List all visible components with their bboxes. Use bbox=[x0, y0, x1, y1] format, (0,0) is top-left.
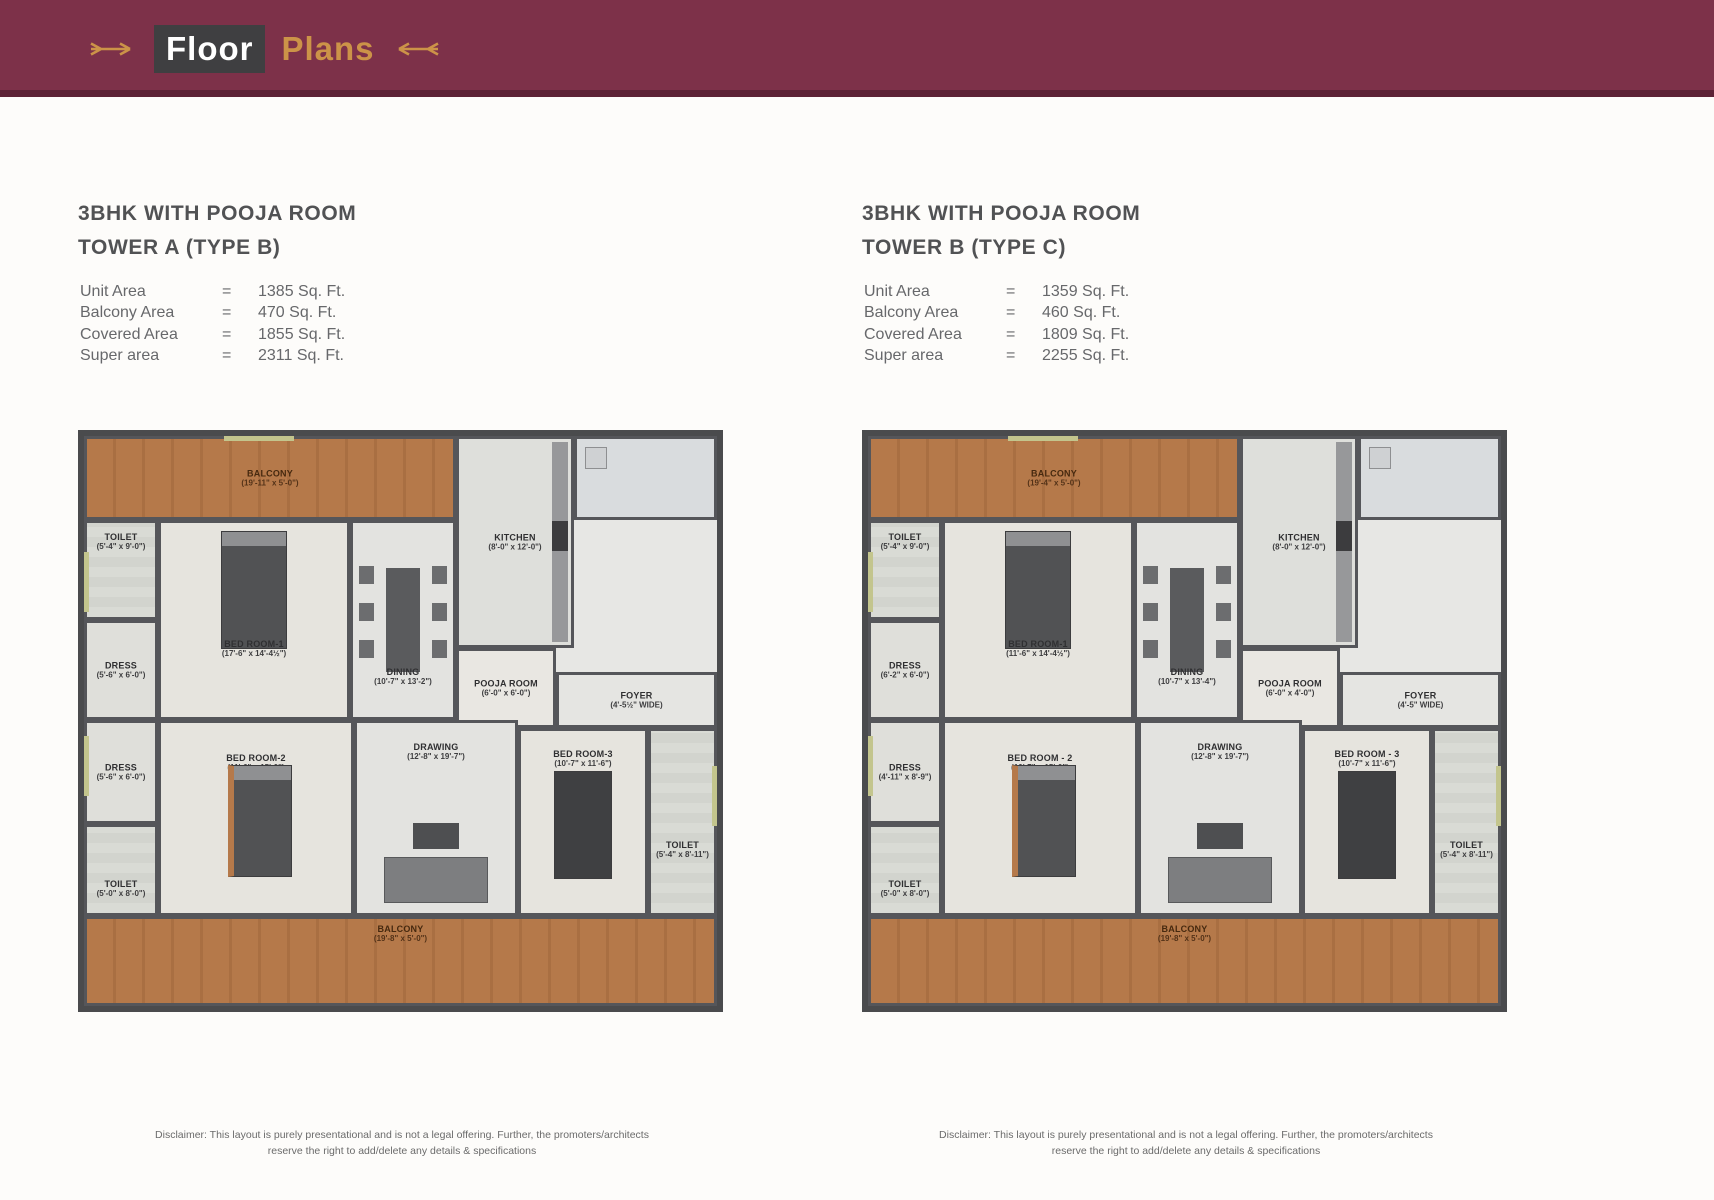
window-accent bbox=[84, 552, 89, 612]
room-toilet-bottom-right: TOILET (5'-4" x 8'-11") bbox=[1432, 728, 1501, 916]
room-dims: (6'-0" x 6'-0") bbox=[459, 689, 553, 698]
room-kitchen: KITCHEN (8'-0" x 12'-0") bbox=[1240, 436, 1358, 648]
room-dims: (12'-8" x 19'-7") bbox=[357, 752, 515, 761]
room-label: BALCONY bbox=[87, 469, 453, 479]
bed-icon bbox=[228, 765, 292, 877]
washing-machine-icon bbox=[1369, 447, 1391, 469]
stove-icon bbox=[552, 521, 568, 551]
room-label: TOILET bbox=[1435, 840, 1498, 850]
spec-label: Unit Area bbox=[80, 283, 210, 301]
room-label: BED ROOM-2 bbox=[161, 753, 351, 763]
room-label: DRESS bbox=[87, 661, 155, 671]
room-label: TOILET bbox=[651, 840, 714, 850]
room-pooja: POOJA ROOM (6'-0" x 4'-0") bbox=[1240, 648, 1340, 728]
room-dims: (11'-6" x 14'-4½") bbox=[945, 649, 1131, 658]
bed-icon bbox=[1338, 771, 1396, 879]
window-accent bbox=[84, 736, 89, 796]
arrow-right-ornament-icon bbox=[88, 39, 138, 59]
room-dress-top: DRESS (6'-2" x 6'-0") bbox=[868, 620, 942, 720]
disclaimer-line1: Disclaimer: This layout is purely presen… bbox=[78, 1127, 726, 1143]
spec-row: Balcony Area = 470 Sq. Ft. bbox=[80, 303, 345, 325]
room-foyer: FOYER (4'-5½" WIDE) bbox=[556, 672, 717, 728]
room-dining: DINING (10'-7" x 13'-2") bbox=[350, 520, 456, 720]
plan-b-title-line2: TOWER B (TYPE C) bbox=[862, 231, 1510, 265]
spec-equals: = bbox=[210, 304, 258, 322]
header-title-group: Floor Plans bbox=[88, 0, 441, 97]
room-dims: (10'-7" x 13'-2") bbox=[353, 677, 453, 686]
plan-a-disclaimer: Disclaimer: This layout is purely presen… bbox=[78, 1127, 726, 1160]
room-label: POOJA ROOM bbox=[459, 679, 553, 689]
spec-label: Unit Area bbox=[864, 283, 994, 301]
room-dims: (17'-6" x 14'-4½") bbox=[161, 649, 347, 658]
room-balcony-top: BALCONY (19'-11" x 5'-0") bbox=[84, 436, 456, 520]
room-balcony-bottom: BALCONY (19'-8" x 5'-0") bbox=[84, 916, 717, 1006]
room-drawing: DRAWING (12'-8" x 19'-7") bbox=[354, 720, 518, 916]
window-accent bbox=[868, 552, 873, 612]
room-dims: (12'-8" x 19'-7") bbox=[1141, 752, 1299, 761]
room-toilet-top: TOILET (5'-4" x 9'-0") bbox=[868, 520, 942, 620]
header-band: Floor Plans bbox=[0, 0, 1714, 97]
room-dims: (5'-0" x 8'-0") bbox=[871, 889, 939, 898]
window-accent bbox=[712, 766, 717, 826]
room-label: DRESS bbox=[871, 763, 939, 773]
dining-table-icon bbox=[386, 568, 420, 672]
room-balcony-top: BALCONY (19'-4" x 5'-0") bbox=[868, 436, 1240, 520]
plan-b-title: 3BHK WITH POOJA ROOM TOWER B (TYPE C) bbox=[862, 197, 1510, 264]
room-dress-bottom: DRESS (4'-11" x 8'-9") bbox=[868, 720, 942, 824]
room-pooja: POOJA ROOM (6'-0" x 6'-0") bbox=[456, 648, 556, 728]
room-dims: (5'-4" x 8'-11") bbox=[651, 850, 714, 859]
room-dims: (4'-5" WIDE) bbox=[1343, 701, 1498, 710]
spec-value: 1809 Sq. Ft. bbox=[1042, 326, 1129, 344]
center-table-icon bbox=[413, 823, 459, 849]
sofa-icon bbox=[1168, 857, 1272, 903]
page-title-plans: Plans bbox=[281, 30, 374, 68]
room-toilet-bottom-right: TOILET (5'-4" x 8'-11") bbox=[648, 728, 717, 916]
window-accent bbox=[224, 436, 294, 441]
spec-label: Balcony Area bbox=[864, 304, 994, 322]
room-toilet-bottom-left: TOILET (5'-0" x 8'-0") bbox=[868, 824, 942, 916]
room-dims: (10'-7" x 13'-4") bbox=[1137, 677, 1237, 686]
spec-equals: = bbox=[210, 283, 258, 301]
bed-icon bbox=[221, 531, 287, 649]
plan-a-title-line1: 3BHK WITH POOJA ROOM bbox=[78, 197, 726, 231]
bed-icon bbox=[1005, 531, 1071, 649]
window-accent bbox=[868, 736, 873, 796]
plan-b-specs: Unit Area = 1359 Sq. Ft. Balcony Area = … bbox=[864, 281, 1129, 367]
room-bedroom-3: BED ROOM - 3 (10'-7" x 11'-6") bbox=[1302, 728, 1432, 916]
room-label: BALCONY bbox=[871, 469, 1237, 479]
chairs-icon bbox=[359, 566, 374, 674]
room-label: BED ROOM-3 bbox=[521, 749, 645, 759]
room-toilet-top: TOILET (5'-4" x 9'-0") bbox=[84, 520, 158, 620]
bed-icon bbox=[554, 771, 612, 879]
spec-row: Unit Area = 1385 Sq. Ft. bbox=[80, 281, 345, 303]
plan-a-section: 3BHK WITH POOJA ROOM TOWER A (TYPE B) Un… bbox=[78, 197, 726, 1187]
plan-b-floorplan: BALCONY (19'-4" x 5'-0") KITCHEN (8'-0" … bbox=[862, 430, 1507, 1012]
sofa-icon bbox=[384, 857, 488, 903]
plan-a-title-line2: TOWER A (TYPE B) bbox=[78, 231, 726, 265]
spec-value: 470 Sq. Ft. bbox=[258, 304, 345, 322]
disclaimer-line1: Disclaimer: This layout is purely presen… bbox=[862, 1127, 1510, 1143]
spec-row: Unit Area = 1359 Sq. Ft. bbox=[864, 281, 1129, 303]
room-label: POOJA ROOM bbox=[1243, 679, 1337, 689]
disclaimer-line2: reserve the right to add/delete any deta… bbox=[862, 1143, 1510, 1159]
room-label: DRAWING bbox=[1141, 742, 1299, 752]
spec-row: Covered Area = 1809 Sq. Ft. bbox=[864, 324, 1129, 346]
plan-a-specs: Unit Area = 1385 Sq. Ft. Balcony Area = … bbox=[80, 281, 345, 367]
spec-equals: = bbox=[994, 283, 1042, 301]
room-drawing: DRAWING (12'-8" x 19'-7") bbox=[1138, 720, 1302, 916]
dining-table-icon bbox=[1170, 568, 1204, 672]
room-dims: (5'-4" x 9'-0") bbox=[871, 542, 939, 551]
spec-row: Super area = 2255 Sq. Ft. bbox=[864, 346, 1129, 368]
room-balcony-bottom: BALCONY (19'-8" x 5'-0") bbox=[868, 916, 1501, 1006]
chairs-icon bbox=[432, 566, 447, 674]
room-label: FOYER bbox=[1343, 691, 1498, 701]
room-dims: (5'-6" x 6'-0") bbox=[87, 773, 155, 782]
plan-a-floorplan: BALCONY (19'-11" x 5'-0") KITCHEN (8'-0"… bbox=[78, 430, 723, 1012]
disclaimer-line2: reserve the right to add/delete any deta… bbox=[78, 1143, 726, 1159]
room-label: BALCONY bbox=[871, 924, 1498, 934]
brochure-page: Floor Plans 3BHK WITH POOJA ROOM TOWER A… bbox=[0, 0, 1714, 1200]
spec-equals: = bbox=[994, 304, 1042, 322]
spec-row: Balcony Area = 460 Sq. Ft. bbox=[864, 303, 1129, 325]
room-dims: (19'-8" x 5'-0") bbox=[871, 934, 1498, 943]
room-kitchen: KITCHEN (8'-0" x 12'-0") bbox=[456, 436, 574, 648]
room-label: TOILET bbox=[87, 532, 155, 542]
spec-equals: = bbox=[994, 326, 1042, 344]
room-dims: (19'-4" x 5'-0") bbox=[871, 479, 1237, 488]
spec-value: 2311 Sq. Ft. bbox=[258, 347, 345, 365]
room-dims: (19'-11" x 5'-0") bbox=[87, 479, 453, 488]
room-dims: (4'-11" x 8'-9") bbox=[871, 773, 939, 782]
spec-equals: = bbox=[210, 326, 258, 344]
room-dims: (4'-5½" WIDE) bbox=[559, 701, 714, 710]
spec-row: Super area = 2311 Sq. Ft. bbox=[80, 346, 345, 368]
spec-row: Covered Area = 1855 Sq. Ft. bbox=[80, 324, 345, 346]
spec-value: 1855 Sq. Ft. bbox=[258, 326, 345, 344]
room-bedroom-2: BED ROOM - 2 (10'-7" x 15'-0") bbox=[942, 720, 1138, 916]
center-table-icon bbox=[1197, 823, 1243, 849]
room-dining: DINING (10'-7" x 13'-4") bbox=[1134, 520, 1240, 720]
room-bedroom-2: BED ROOM-2 (11'-6" x 15'-0") bbox=[158, 720, 354, 916]
arrow-left-ornament-icon bbox=[391, 39, 441, 59]
room-label: TOILET bbox=[871, 532, 939, 542]
room-label: DRESS bbox=[871, 661, 939, 671]
washing-machine-icon bbox=[585, 447, 607, 469]
plan-a-title: 3BHK WITH POOJA ROOM TOWER A (TYPE B) bbox=[78, 197, 726, 264]
room-dims: (19'-8" x 5'-0") bbox=[87, 934, 714, 943]
room-label: BALCONY bbox=[87, 924, 714, 934]
spec-label: Covered Area bbox=[864, 326, 994, 344]
room-dress-top: DRESS (5'-6" x 6'-0") bbox=[84, 620, 158, 720]
room-label: TOILET bbox=[87, 879, 155, 889]
spec-value: 1385 Sq. Ft. bbox=[258, 283, 345, 301]
page-title-floor: Floor bbox=[154, 25, 265, 73]
plan-b-title-line1: 3BHK WITH POOJA ROOM bbox=[862, 197, 1510, 231]
plan-b-section: 3BHK WITH POOJA ROOM TOWER B (TYPE C) Un… bbox=[862, 197, 1510, 1187]
room-dims: (10'-7" x 11'-6") bbox=[1305, 759, 1429, 768]
room-utility-balcony bbox=[1358, 436, 1501, 520]
plan-b-disclaimer: Disclaimer: This layout is purely presen… bbox=[862, 1127, 1510, 1160]
room-label: BED ROOM - 2 bbox=[945, 753, 1135, 763]
room-dims: (6'-0" x 4'-0") bbox=[1243, 689, 1337, 698]
chairs-icon bbox=[1143, 566, 1158, 674]
room-dims: (5'-6" x 6'-0") bbox=[87, 671, 155, 680]
spec-label: Balcony Area bbox=[80, 304, 210, 322]
spec-label: Covered Area bbox=[80, 326, 210, 344]
spec-label: Super area bbox=[864, 347, 994, 365]
room-bedroom-1: BED ROOM-1 (17'-6" x 14'-4½") bbox=[158, 520, 350, 720]
room-label: FOYER bbox=[559, 691, 714, 701]
room-dims: (10'-7" x 11'-6") bbox=[521, 759, 645, 768]
bed-icon bbox=[1012, 765, 1076, 877]
room-label: TOILET bbox=[871, 879, 939, 889]
spec-equals: = bbox=[210, 347, 258, 365]
room-dims: (5'-4" x 8'-11") bbox=[1435, 850, 1498, 859]
room-dims: (6'-2" x 6'-0") bbox=[871, 671, 939, 680]
room-bedroom-3: BED ROOM-3 (10'-7" x 11'-6") bbox=[518, 728, 648, 916]
chairs-icon bbox=[1216, 566, 1231, 674]
spec-label: Super area bbox=[80, 347, 210, 365]
room-utility-balcony bbox=[574, 436, 717, 520]
room-toilet-bottom-left: TOILET (5'-0" x 8'-0") bbox=[84, 824, 158, 916]
spec-value: 460 Sq. Ft. bbox=[1042, 304, 1129, 322]
room-label: DRESS bbox=[87, 763, 155, 773]
spec-equals: = bbox=[994, 347, 1042, 365]
room-dims: (5'-0" x 8'-0") bbox=[87, 889, 155, 898]
window-accent bbox=[1008, 436, 1078, 441]
room-foyer: FOYER (4'-5" WIDE) bbox=[1340, 672, 1501, 728]
room-label: DRAWING bbox=[357, 742, 515, 752]
window-accent bbox=[1496, 766, 1501, 826]
stove-icon bbox=[1336, 521, 1352, 551]
room-dress-bottom: DRESS (5'-6" x 6'-0") bbox=[84, 720, 158, 824]
spec-value: 1359 Sq. Ft. bbox=[1042, 283, 1129, 301]
room-bedroom-1: BED ROOM-1 (11'-6" x 14'-4½") bbox=[942, 520, 1134, 720]
spec-value: 2255 Sq. Ft. bbox=[1042, 347, 1129, 365]
room-label: BED ROOM - 3 bbox=[1305, 749, 1429, 759]
room-dims: (5'-4" x 9'-0") bbox=[87, 542, 155, 551]
